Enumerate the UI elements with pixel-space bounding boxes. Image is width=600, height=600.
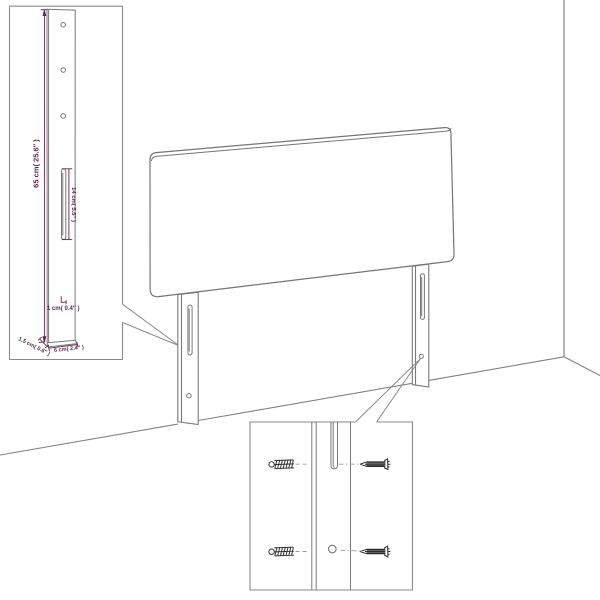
svg-text:65 cm( 25.6″ ): 65 cm( 25.6″ )	[32, 139, 41, 188]
svg-text:14 cm( 5.5″ ): 14 cm( 5.5″ )	[70, 187, 76, 222]
svg-text:1 cm( 0.4″ ): 1 cm( 0.4″ )	[47, 305, 80, 312]
